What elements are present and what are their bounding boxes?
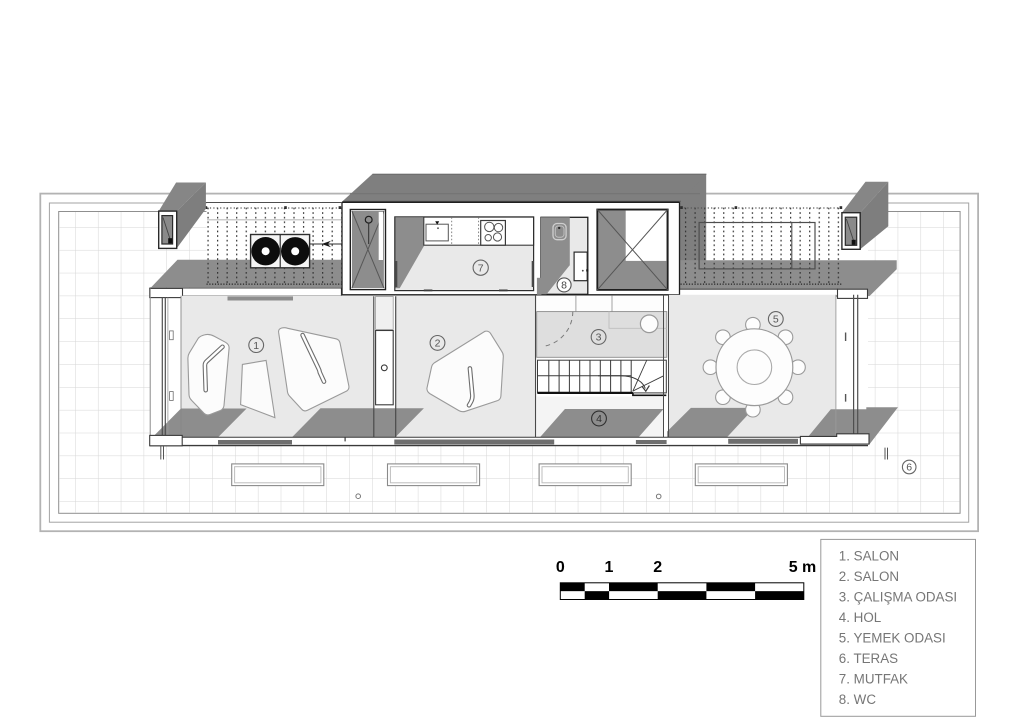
svg-text:3: 3 xyxy=(596,332,602,344)
svg-text:2. SALON: 2. SALON xyxy=(839,569,899,584)
svg-text:1: 1 xyxy=(605,559,614,576)
svg-text:4: 4 xyxy=(596,413,602,425)
svg-text:3. ÇALIŞMA ODASI: 3. ÇALIŞMA ODASI xyxy=(839,589,957,604)
svg-text:6. TERAS: 6. TERAS xyxy=(839,651,898,666)
svg-text:0: 0 xyxy=(556,559,565,576)
svg-text:2: 2 xyxy=(653,559,662,576)
svg-text:4. HOL: 4. HOL xyxy=(839,610,881,625)
svg-text:6: 6 xyxy=(906,462,912,474)
svg-text:5. YEMEK ODASI: 5. YEMEK ODASI xyxy=(839,630,946,645)
svg-text:1. SALON: 1. SALON xyxy=(839,548,899,563)
svg-text:8. WC: 8. WC xyxy=(839,692,877,707)
svg-text:8: 8 xyxy=(561,280,567,292)
svg-text:5 m: 5 m xyxy=(789,559,817,576)
svg-text:2: 2 xyxy=(435,338,441,350)
svg-text:7. MUTFAK: 7. MUTFAK xyxy=(839,671,908,686)
svg-text:1: 1 xyxy=(253,340,259,352)
svg-text:5: 5 xyxy=(773,314,779,326)
svg-text:7: 7 xyxy=(478,262,484,274)
